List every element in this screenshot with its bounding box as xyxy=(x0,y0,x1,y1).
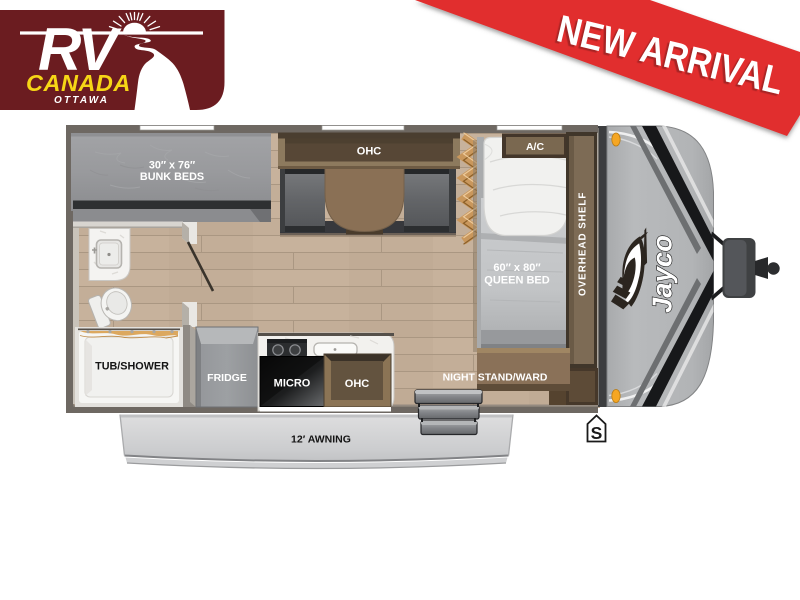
svg-text:A/C: A/C xyxy=(526,141,545,153)
svg-text:OTTAWA: OTTAWA xyxy=(54,95,109,106)
svg-text:S: S xyxy=(591,423,603,443)
svg-text:BUNK BEDS: BUNK BEDS xyxy=(140,171,204,183)
svg-text:CANADA: CANADA xyxy=(26,70,131,96)
svg-text:FRIDGE: FRIDGE xyxy=(207,372,247,384)
svg-text:NIGHT STAND/WARD: NIGHT STAND/WARD xyxy=(443,373,548,384)
svg-text:30″ x 76″: 30″ x 76″ xyxy=(149,160,195,172)
svg-text:OHC: OHC xyxy=(357,146,382,158)
svg-text:60″ x 80″: 60″ x 80″ xyxy=(493,262,541,274)
svg-text:TUB/SHOWER: TUB/SHOWER xyxy=(95,361,169,373)
svg-text:MICRO: MICRO xyxy=(274,378,311,390)
svg-text:Jayco: Jayco xyxy=(647,235,678,313)
svg-text:QUEEN BED: QUEEN BED xyxy=(484,275,549,287)
svg-text:OHC: OHC xyxy=(345,378,370,390)
svg-text:OVERHEAD SHELF: OVERHEAD SHELF xyxy=(578,192,589,296)
svg-text:12′ AWNING: 12′ AWNING xyxy=(291,434,351,446)
